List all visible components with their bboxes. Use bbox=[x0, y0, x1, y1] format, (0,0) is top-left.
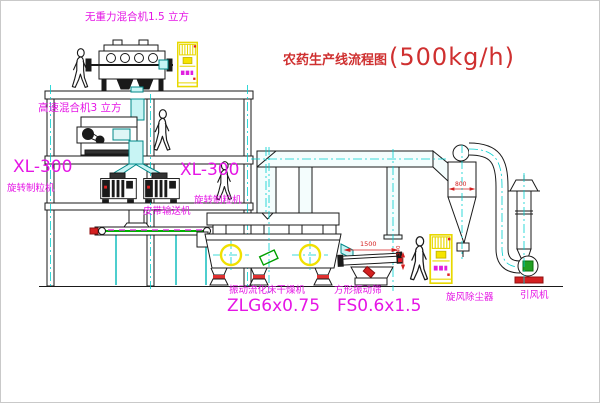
dim-sieve-length: 1500 bbox=[360, 241, 377, 248]
flow-diagram-canvas: 农药生产线流程图 (500kg/h) 无重力混合机1.5 立方 高速混合机3 立… bbox=[0, 0, 600, 403]
dim-sieve-height: 340 bbox=[397, 246, 403, 257]
label-granulator-right-model: XL-300 bbox=[180, 162, 239, 179]
title-chinese: 农药生产线流程图 bbox=[283, 49, 387, 71]
label-induced-draft-fan: 引风机 bbox=[520, 291, 549, 301]
title-capacity: (500kg/h) bbox=[389, 43, 515, 71]
control-cabinet-cyclone bbox=[430, 235, 452, 283]
label-sieve-model: FS0.6x1.5 bbox=[337, 298, 421, 315]
label-high-speed-mixer: 高速混合机3 立方 bbox=[38, 103, 122, 114]
label-granulator-left-name: 旋转制粒机 bbox=[7, 184, 55, 194]
dryer-mount-2 bbox=[250, 268, 268, 285]
worker-top-floor bbox=[72, 49, 87, 88]
diagram-title: 农药生产线流程图 (500kg/h) bbox=[283, 43, 515, 71]
dryer-mount-3 bbox=[314, 268, 332, 285]
label-granulator-right-name: 旋转制粒机 bbox=[194, 196, 242, 206]
label-granulator-left-model: XL-300 bbox=[13, 159, 72, 176]
worker-floor-2 bbox=[154, 110, 170, 150]
dryer-mount-1 bbox=[210, 268, 228, 285]
label-dryer-model: ZLG6x0.75 bbox=[227, 298, 320, 315]
control-cabinet-top bbox=[178, 42, 198, 86]
label-cyclone: 旋风除尘器 bbox=[446, 293, 494, 303]
dim-cyclone-diameter: 800 bbox=[455, 182, 466, 188]
rotary-granulator-right bbox=[144, 178, 180, 202]
gravity-free-mixer bbox=[86, 40, 173, 92]
rotary-granulator-left bbox=[101, 178, 137, 202]
y-chute bbox=[110, 164, 167, 179]
label-dryer-name: 振动流化床干燥机 bbox=[229, 286, 305, 296]
worker-ground bbox=[411, 237, 428, 280]
label-sieve-name: 方形振动筛 bbox=[334, 286, 382, 296]
label-belt-conveyor: 皮带输送机 bbox=[143, 207, 191, 217]
fan-and-stack bbox=[469, 149, 543, 285]
label-gravity-free-mixer: 无重力混合机1.5 立方 bbox=[85, 12, 189, 23]
